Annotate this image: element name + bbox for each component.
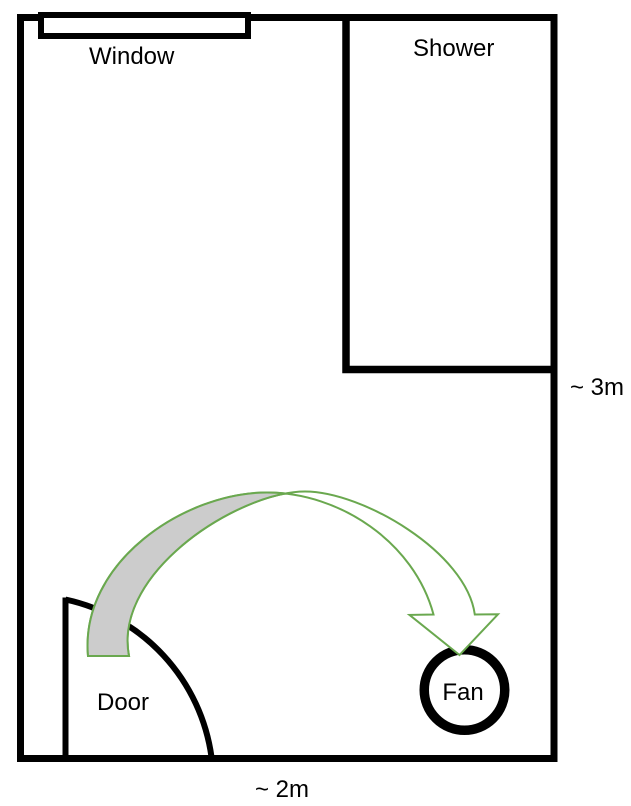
svg-text:~ 3m: ~ 3m bbox=[570, 374, 624, 401]
svg-text:Shower: Shower bbox=[413, 35, 494, 62]
svg-text:Fan: Fan bbox=[442, 679, 483, 706]
svg-text:~ 2m: ~ 2m bbox=[255, 776, 309, 803]
svg-text:Door: Door bbox=[97, 689, 149, 716]
svg-text:Window: Window bbox=[89, 43, 175, 70]
